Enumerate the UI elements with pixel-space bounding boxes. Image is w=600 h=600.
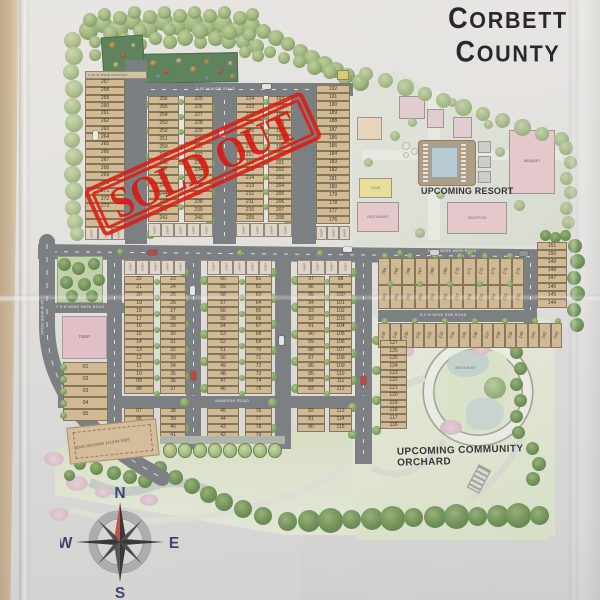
svg-text:N: N <box>114 485 125 502</box>
svg-text:S: S <box>115 585 125 600</box>
svg-text:E: E <box>169 535 179 552</box>
svg-text:W: W <box>60 535 73 552</box>
